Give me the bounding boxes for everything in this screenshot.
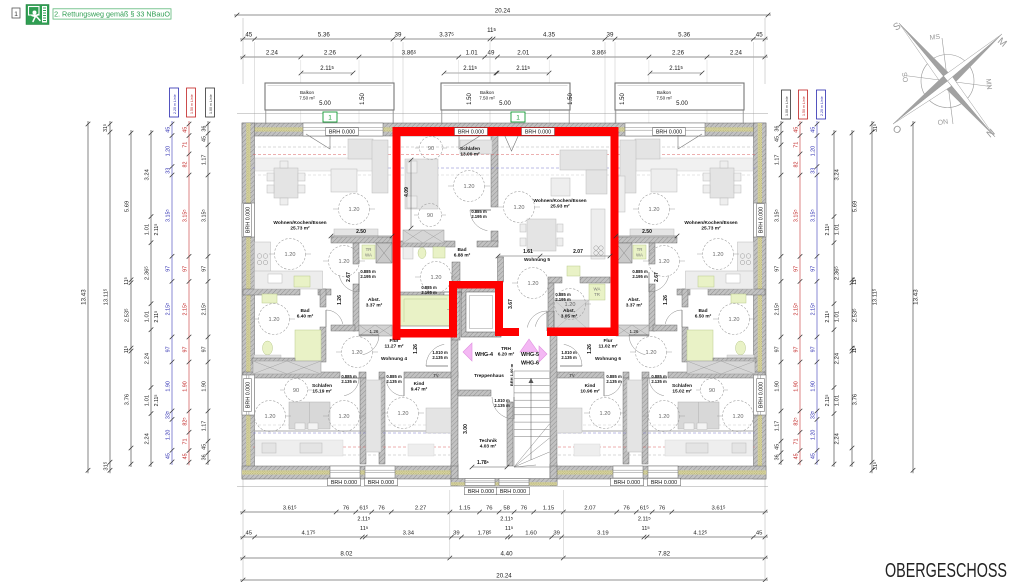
svg-text:45: 45 — [775, 444, 781, 450]
svg-text:2.135 m: 2.135 m — [432, 355, 448, 360]
svg-text:39: 39 — [553, 531, 560, 537]
svg-text:Balkon: Balkon — [300, 90, 314, 95]
svg-text:1.20: 1.20 — [339, 259, 350, 265]
svg-text:45: 45 — [183, 127, 189, 133]
svg-text:1.15: 1.15 — [459, 506, 471, 512]
svg-text:1.90: 1.90 — [775, 381, 781, 392]
svg-text:36: 36 — [202, 126, 208, 132]
svg-text:3.76: 3.76 — [853, 393, 859, 405]
svg-text:OS: OS — [902, 71, 910, 82]
svg-text:5.69: 5.69 — [853, 201, 859, 212]
svg-text:1.01: 1.01 — [835, 224, 841, 235]
svg-text:2.195 m: 2.195 m — [360, 274, 376, 279]
svg-text:97: 97 — [794, 347, 800, 353]
svg-text:1.01: 1.01 — [145, 224, 151, 235]
svg-text:1.20: 1.20 — [514, 205, 525, 211]
svg-text:Schlafen13.00 m²: Schlafen13.00 m² — [460, 146, 480, 158]
svg-text:BRH 0.000: BRH 0.000 — [458, 130, 484, 136]
svg-text:1.90: 1.90 — [166, 381, 172, 392]
svg-text:WHG-5: WHG-5 — [521, 352, 539, 358]
svg-text:97: 97 — [775, 266, 781, 272]
svg-text:1.26: 1.26 — [630, 329, 639, 334]
svg-text:BRH 0.000: BRH 0.000 — [368, 480, 394, 486]
svg-text:36: 36 — [775, 126, 781, 132]
svg-text:1.20: 1.20 — [349, 207, 360, 213]
svg-text:1.20: 1.20 — [265, 414, 276, 420]
svg-text:1.26: 1.26 — [413, 344, 419, 354]
svg-text:13.43: 13.43 — [81, 289, 88, 305]
svg-text:WA: WA — [365, 253, 372, 258]
svg-text:45: 45 — [756, 531, 763, 537]
svg-text:2.24: 2.24 — [145, 432, 151, 444]
svg-text:76: 76 — [623, 506, 630, 512]
svg-text:45: 45 — [245, 32, 252, 39]
svg-text:20.24: 20.24 — [495, 8, 511, 15]
svg-text:97: 97 — [794, 266, 800, 272]
svg-text:1.20: 1.20 — [285, 252, 296, 258]
svg-text:1.20: 1.20 — [733, 414, 744, 420]
svg-text:1.20: 1.20 — [269, 317, 280, 323]
svg-text:Treppenhaus: Treppenhaus — [474, 373, 504, 379]
svg-text:3.76: 3.76 — [125, 393, 131, 405]
svg-text:1: 1 — [516, 115, 520, 122]
svg-text:Wohnung 5: Wohnung 5 — [524, 257, 550, 263]
svg-text:2.195 m: 2.195 m — [421, 290, 437, 295]
svg-text:2.135 m: 2.135 m — [606, 379, 622, 384]
svg-text:2.135 m: 2.135 m — [561, 355, 577, 360]
svg-text:1.20: 1.20 — [600, 411, 611, 417]
svg-text:2.20 m Linie: 2.20 m Linie — [173, 94, 177, 114]
svg-text:BRH 0.000: BRH 0.000 — [614, 480, 640, 486]
svg-text:45: 45 — [166, 127, 172, 133]
svg-text:1.90: 1.90 — [202, 381, 208, 392]
svg-text:1.26: 1.26 — [663, 295, 669, 305]
svg-text:2.195 m: 2.195 m — [555, 297, 571, 302]
svg-text:97: 97 — [775, 346, 781, 352]
svg-text:TV: TV — [433, 373, 439, 378]
svg-text:33: 33 — [166, 168, 172, 174]
svg-text:2.135 m: 2.135 m — [494, 403, 510, 408]
svg-text:ON: ON — [937, 119, 948, 127]
svg-text:3.24: 3.24 — [835, 168, 841, 180]
svg-text:MS: MS — [929, 34, 941, 42]
svg-text:BRH 0.000: BRH 0.000 — [329, 130, 355, 136]
svg-text:2.195 m: 2.195 m — [471, 214, 487, 219]
svg-text:1.20: 1.20 — [659, 259, 670, 265]
svg-text:5.00: 5.00 — [499, 101, 511, 107]
svg-text:45: 45 — [166, 453, 172, 459]
svg-text:2.20 m Linie: 2.20 m Linie — [820, 96, 824, 116]
svg-text:4.09: 4.09 — [404, 187, 410, 197]
svg-text:20.24: 20.24 — [496, 573, 512, 580]
svg-text:13.43: 13.43 — [913, 289, 920, 305]
svg-text:2.50: 2.50 — [356, 229, 366, 235]
svg-text:Schlafen15.02 m²: Schlafen15.02 m² — [672, 383, 692, 395]
svg-text:45: 45 — [794, 453, 800, 459]
svg-text:4.35: 4.35 — [543, 32, 556, 39]
svg-text:2.24: 2.24 — [835, 432, 841, 444]
svg-text:39: 39 — [395, 32, 402, 39]
svg-text:1.26: 1.26 — [337, 295, 343, 305]
svg-text:39: 39 — [453, 531, 460, 537]
svg-text:BRH 0.000: BRH 0.000 — [525, 130, 551, 136]
svg-text:45: 45 — [756, 32, 763, 39]
svg-text:1.01: 1.01 — [145, 311, 151, 322]
svg-text:39: 39 — [607, 32, 614, 39]
svg-text:5.00: 5.00 — [676, 101, 688, 107]
svg-text:90: 90 — [428, 146, 434, 152]
svg-text:WHG-6: WHG-6 — [521, 361, 539, 367]
svg-text:BRH 0.000: BRH 0.000 — [651, 480, 677, 486]
svg-text:BRH 0.000: BRH 0.000 — [759, 382, 765, 408]
svg-text:45: 45 — [794, 127, 800, 133]
svg-text:76: 76 — [378, 506, 385, 512]
svg-text:2.07: 2.07 — [584, 506, 595, 512]
svg-text:1.01: 1.01 — [145, 395, 151, 406]
svg-text:1.50: 1.50 — [467, 93, 473, 105]
svg-text:7.50 m²: 7.50 m² — [299, 96, 315, 101]
svg-text:1.20: 1.20 — [339, 414, 350, 420]
svg-text:2.26: 2.26 — [672, 50, 685, 57]
svg-text:1.17: 1.17 — [202, 155, 208, 166]
svg-text:2.24: 2.24 — [835, 352, 841, 364]
svg-text:2.01: 2.01 — [517, 50, 530, 57]
svg-text:5.36: 5.36 — [318, 32, 331, 39]
svg-text:1.20: 1.20 — [398, 411, 409, 417]
svg-text:71: 71 — [183, 439, 189, 445]
svg-text:1.50: 1.50 — [360, 93, 366, 105]
svg-text:2.24: 2.24 — [145, 352, 151, 364]
svg-text:1.20: 1.20 — [811, 430, 817, 441]
svg-text:1.20: 1.20 — [646, 350, 657, 356]
svg-text:WA: WA — [636, 253, 643, 258]
svg-text:36: 36 — [202, 454, 208, 460]
svg-text:82: 82 — [183, 162, 189, 168]
svg-text:5.00: 5.00 — [319, 101, 331, 107]
svg-text:BRH 0.000: BRH 0.000 — [331, 480, 357, 486]
svg-text:WHG-4: WHG-4 — [475, 352, 493, 358]
svg-text:BRH 0.000: BRH 0.000 — [246, 207, 252, 233]
svg-text:49: 49 — [488, 50, 495, 57]
svg-text:45: 45 — [202, 136, 208, 142]
svg-text:1.00 m Linie: 1.00 m Linie — [209, 94, 213, 114]
svg-text:76: 76 — [343, 506, 350, 512]
svg-text:Technik4.03 m²: Technik4.03 m² — [479, 438, 497, 450]
svg-text:1.20: 1.20 — [659, 414, 670, 420]
svg-text:1.20: 1.20 — [528, 281, 539, 287]
svg-text:45: 45 — [775, 136, 781, 142]
svg-text:1.00 m Linie: 1.00 m Linie — [785, 96, 789, 116]
svg-text:45: 45 — [811, 453, 817, 459]
svg-text:5.36: 5.36 — [678, 32, 691, 39]
svg-text:1.78⁵: 1.78⁵ — [477, 460, 490, 466]
svg-text:2.24: 2.24 — [266, 50, 279, 57]
svg-text:97: 97 — [202, 266, 208, 272]
svg-text:2. Rettungsweg gemäß § 33 NBau: 2. Rettungsweg gemäß § 33 NBauO — [54, 10, 170, 19]
svg-text:1.90: 1.90 — [794, 381, 800, 392]
svg-text:1.20: 1.20 — [166, 146, 172, 157]
svg-text:1.26: 1.26 — [587, 344, 593, 354]
svg-text:97: 97 — [811, 266, 817, 272]
svg-text:Balkon: Balkon — [480, 90, 494, 95]
svg-text:33: 33 — [811, 168, 817, 174]
svg-text:1.17: 1.17 — [775, 155, 781, 166]
svg-text:BRH 1.00 m: BRH 1.00 m — [509, 363, 514, 386]
svg-text:7.50 m²: 7.50 m² — [656, 96, 672, 101]
svg-text:1.20: 1.20 — [166, 430, 172, 441]
svg-text:71: 71 — [794, 439, 800, 445]
svg-text:36: 36 — [775, 454, 781, 460]
svg-text:1.20: 1.20 — [729, 317, 740, 323]
svg-text:97: 97 — [202, 346, 208, 352]
svg-text:1.01: 1.01 — [466, 50, 479, 57]
svg-text:1.61: 1.61 — [523, 249, 533, 255]
svg-text:1.50 m Linie: 1.50 m Linie — [802, 96, 806, 116]
svg-text:1.20: 1.20 — [352, 350, 363, 356]
svg-text:BRH 0.000: BRH 0.000 — [468, 489, 494, 495]
svg-text:1.15: 1.15 — [543, 506, 555, 512]
svg-text:3.19: 3.19 — [597, 531, 608, 537]
svg-text:97: 97 — [183, 266, 189, 272]
svg-text:TV: TV — [569, 373, 575, 378]
svg-text:5.69: 5.69 — [125, 201, 131, 212]
svg-text:1.60: 1.60 — [525, 531, 537, 537]
svg-text:71: 71 — [794, 142, 800, 148]
svg-text:MN: MN — [984, 78, 992, 90]
svg-text:4.40: 4.40 — [500, 551, 513, 558]
svg-text:BRH 0.000: BRH 0.000 — [656, 130, 682, 136]
svg-text:Wohnung 4: Wohnung 4 — [381, 356, 407, 362]
svg-text:3.24: 3.24 — [145, 168, 151, 180]
svg-text:1.50: 1.50 — [620, 93, 626, 105]
svg-text:1.20: 1.20 — [713, 252, 724, 258]
svg-text:BRH 0.000: BRH 0.000 — [759, 207, 765, 233]
svg-text:76: 76 — [521, 506, 528, 512]
svg-text:45: 45 — [811, 127, 817, 133]
svg-text:1.20: 1.20 — [811, 146, 817, 157]
svg-text:1.50: 1.50 — [568, 93, 574, 105]
svg-text:97: 97 — [166, 346, 172, 352]
svg-text:71: 71 — [183, 142, 189, 148]
svg-text:WA: WA — [594, 287, 601, 292]
svg-text:1.20: 1.20 — [464, 184, 475, 190]
svg-text:BRH 0.000: BRH 0.000 — [500, 489, 526, 495]
svg-text:1.90: 1.90 — [183, 381, 189, 392]
svg-text:1.20: 1.20 — [565, 302, 576, 308]
svg-text:76: 76 — [659, 506, 666, 512]
svg-text:1.01: 1.01 — [835, 395, 841, 406]
svg-text:OBERGESCHOSS: OBERGESCHOSS — [885, 559, 1007, 582]
svg-text:Schlafen15.19 m²: Schlafen15.19 m² — [312, 383, 332, 395]
svg-text:45: 45 — [202, 444, 208, 450]
svg-text:7.50 m²: 7.50 m² — [479, 96, 495, 101]
svg-text:1.20: 1.20 — [649, 207, 660, 213]
svg-text:2.135 m: 2.135 m — [341, 379, 357, 384]
svg-text:2.67: 2.67 — [654, 272, 660, 282]
svg-text:TR: TR — [594, 292, 600, 297]
svg-text:3.00: 3.00 — [463, 424, 469, 434]
svg-text:2.24: 2.24 — [730, 50, 743, 57]
svg-text:2.67: 2.67 — [346, 272, 352, 282]
svg-text:90: 90 — [427, 213, 433, 219]
svg-text:7.82: 7.82 — [658, 551, 671, 558]
svg-text:97: 97 — [166, 266, 172, 272]
svg-text:8.02: 8.02 — [340, 551, 353, 558]
svg-text:97: 97 — [183, 347, 189, 353]
svg-text:97: 97 — [811, 346, 817, 352]
svg-text:45: 45 — [183, 453, 189, 459]
svg-text:1.26: 1.26 — [370, 329, 379, 334]
svg-text:1: 1 — [328, 115, 332, 122]
svg-text:3.67: 3.67 — [508, 299, 514, 309]
svg-text:2.26: 2.26 — [324, 50, 337, 57]
svg-text:3.34: 3.34 — [403, 531, 415, 537]
svg-text:2.50: 2.50 — [642, 229, 652, 235]
svg-text:90: 90 — [709, 388, 715, 394]
svg-text:82: 82 — [794, 162, 800, 168]
svg-text:1.17: 1.17 — [775, 421, 781, 432]
svg-text:2.27: 2.27 — [415, 506, 426, 512]
svg-text:BRH 0.000: BRH 0.000 — [246, 382, 252, 408]
svg-text:Balkon: Balkon — [657, 90, 671, 95]
svg-text:TR: TR — [637, 247, 643, 252]
svg-text:90: 90 — [293, 388, 299, 394]
svg-text:1: 1 — [14, 11, 18, 18]
svg-text:1.01: 1.01 — [835, 311, 841, 322]
svg-text:2.07: 2.07 — [573, 249, 583, 255]
svg-text:2.135 m: 2.135 m — [651, 379, 667, 384]
svg-text:58: 58 — [503, 506, 510, 512]
svg-text:45: 45 — [246, 531, 253, 537]
svg-text:1.17: 1.17 — [202, 421, 208, 432]
svg-text:1.90: 1.90 — [811, 381, 817, 392]
svg-text:Wohnung 6: Wohnung 6 — [595, 356, 621, 362]
svg-text:76: 76 — [486, 506, 493, 512]
svg-text:2.195 m: 2.195 m — [632, 274, 648, 279]
svg-text:1.20: 1.20 — [431, 275, 442, 281]
svg-text:1.50 m Linie: 1.50 m Linie — [190, 94, 194, 114]
svg-text:2.135 m: 2.135 m — [386, 379, 402, 384]
svg-text:TR: TR — [366, 247, 372, 252]
